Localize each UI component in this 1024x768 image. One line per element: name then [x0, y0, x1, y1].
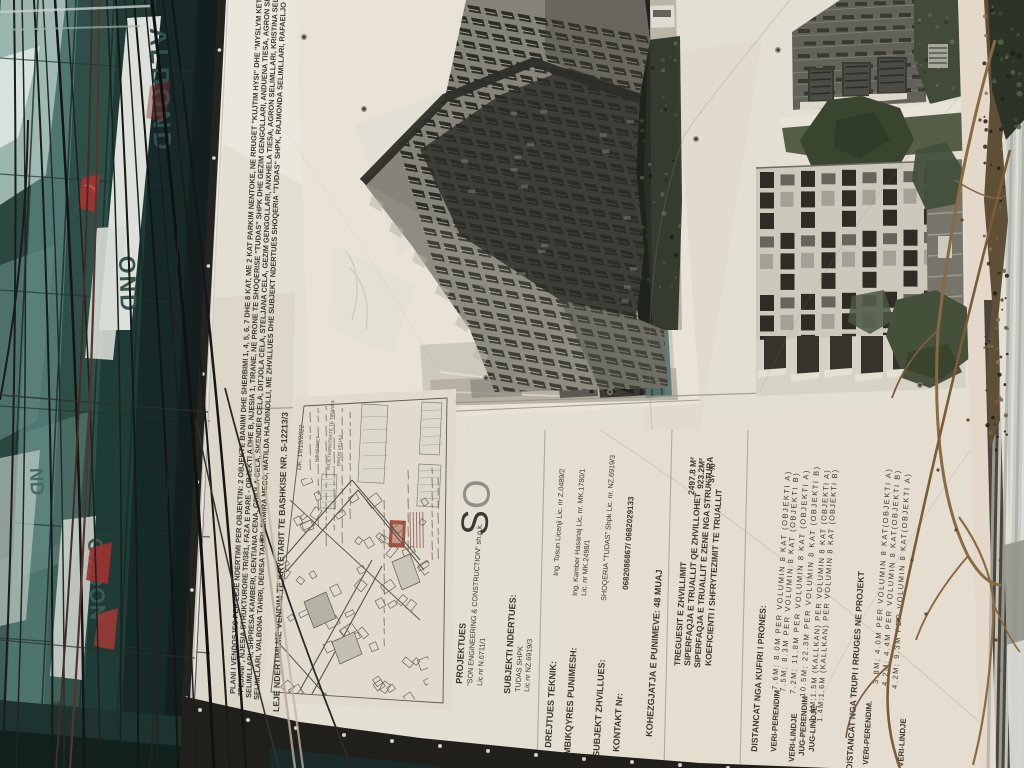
svg-text:923.2M²: 923.2M² [695, 458, 707, 489]
svg-text:ND: ND [25, 467, 47, 495]
svg-text:37 %: 37 % [706, 463, 717, 483]
